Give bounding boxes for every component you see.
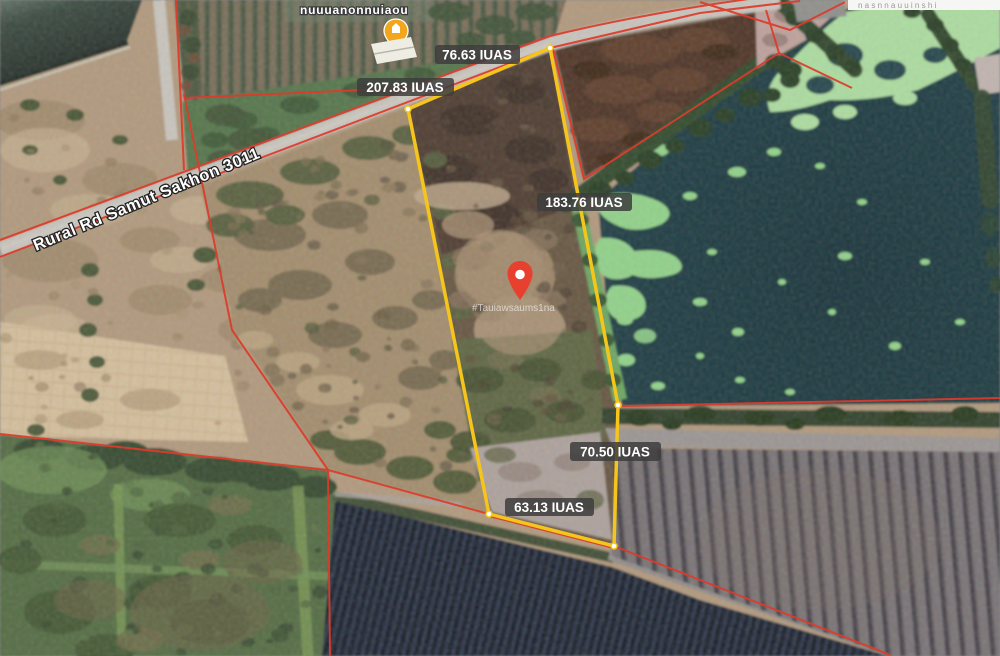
svg-text:63.13 IUAS: 63.13 IUAS: [514, 500, 584, 515]
svg-text:70.50 IUAS: 70.50 IUAS: [580, 445, 650, 460]
svg-text:#Tauiawsaums1na: #Tauiawsaums1na: [472, 303, 555, 314]
svg-text:207.83 IUAS: 207.83 IUAS: [366, 80, 443, 95]
svg-text:183.76 IUAS: 183.76 IUAS: [545, 195, 622, 210]
svg-text:n a s n n a u u i n s h i: n a s n n a u u i n s h i: [858, 1, 936, 10]
svg-text:76.63 IUAS: 76.63 IUAS: [442, 48, 512, 63]
svg-text:nuuuanonnuiaou: nuuuanonnuiaou: [300, 3, 409, 17]
